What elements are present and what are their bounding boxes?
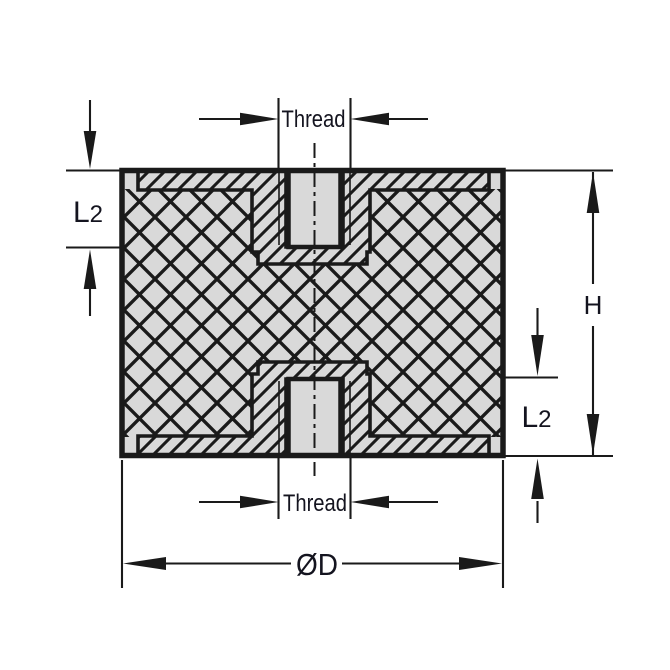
arrowhead-down-icon	[587, 414, 600, 455]
arrowhead-right-icon	[459, 557, 502, 570]
dim-height-label: H	[584, 290, 603, 320]
engineering-drawing: Thread L2 L2 H Thread	[0, 0, 670, 670]
dim-thread-bottom-label: Thread	[283, 490, 347, 517]
dim-thread-top-label: Thread	[282, 106, 346, 133]
dim-l2-right-label: L2	[521, 401, 551, 434]
arrowhead-up-icon	[84, 250, 97, 290]
arrowhead-up-icon	[587, 172, 600, 213]
dim-l2-left-label: L2	[73, 196, 103, 229]
arrowhead-left-icon	[351, 113, 390, 126]
drawing-canvas: Thread L2 L2 H Thread	[0, 0, 670, 670]
arrowhead-down-icon	[84, 131, 97, 169]
arrowhead-left-icon	[123, 557, 166, 570]
arrowhead-up-icon	[531, 459, 544, 500]
arrowhead-right-icon	[240, 113, 279, 126]
arrowhead-right-icon	[240, 496, 279, 509]
arrowhead-left-icon	[351, 496, 390, 509]
dim-diameter-label: ØD	[296, 547, 338, 582]
arrowhead-down-icon	[531, 335, 544, 376]
